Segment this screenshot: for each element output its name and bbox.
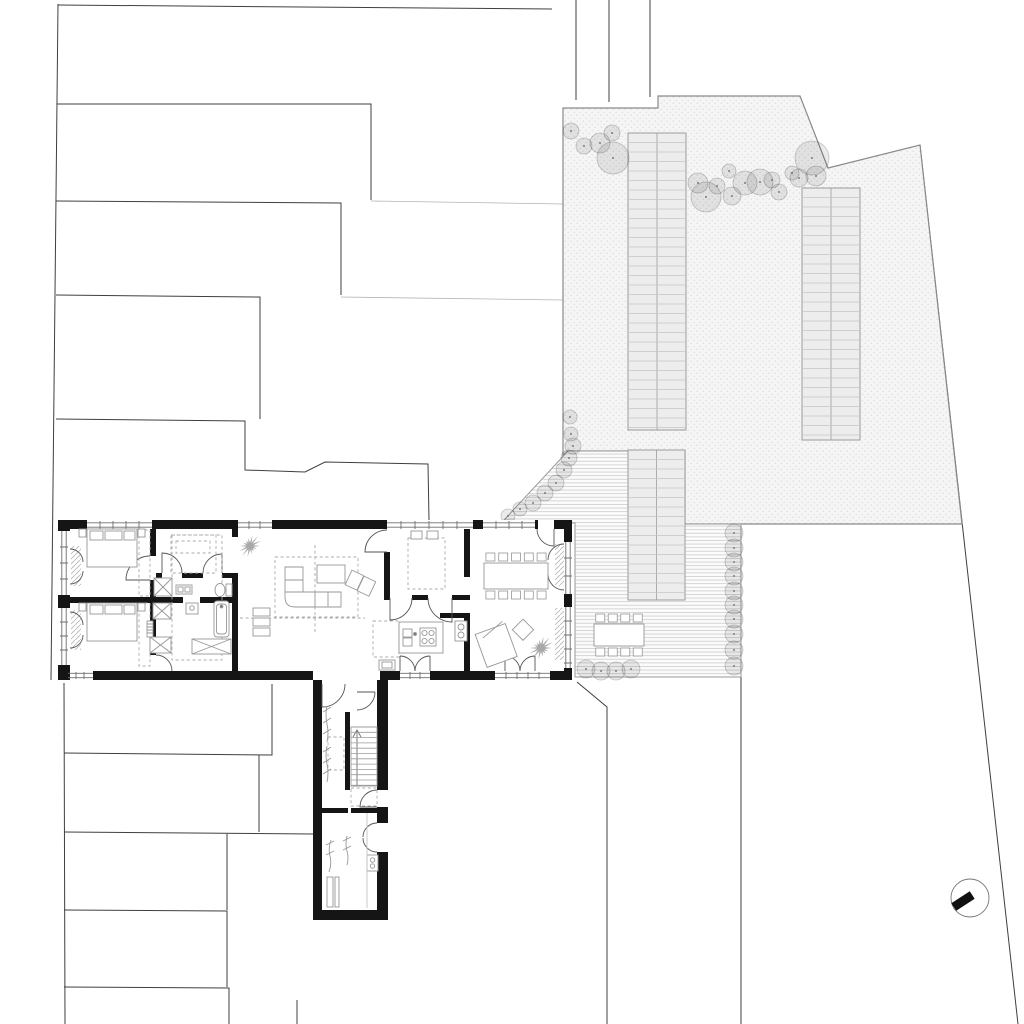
- basin-unit: [186, 603, 198, 614]
- coffee-table: [317, 565, 345, 583]
- chair: [512, 553, 521, 561]
- nightstand: [79, 529, 86, 537]
- nightstand: [79, 603, 86, 611]
- base-cabinet-inner: [382, 662, 392, 668]
- chair: [608, 648, 617, 656]
- tree-trunk-dot: [744, 182, 746, 184]
- chair: [499, 553, 508, 561]
- tree-trunk-dot: [733, 604, 735, 606]
- tree-trunk-dot: [583, 145, 585, 147]
- tree-trunk-dot: [572, 445, 574, 447]
- planting-bed: [802, 188, 860, 440]
- nightstand: [138, 603, 145, 611]
- tree-trunk-dot: [599, 142, 601, 144]
- tree-trunk-dot: [585, 668, 587, 670]
- tree-trunk-dot: [568, 457, 570, 459]
- pillow: [124, 605, 135, 614]
- pillow: [90, 531, 103, 540]
- north-arrow: [951, 879, 989, 917]
- tree-trunk-dot: [716, 185, 718, 187]
- cooktop: [420, 628, 436, 646]
- tree-trunk-dot: [733, 665, 735, 667]
- shelf-unit: [253, 628, 270, 636]
- tree-trunk-dot: [731, 195, 733, 197]
- tree-trunk-dot: [570, 130, 572, 132]
- tree-trunk-dot: [733, 532, 735, 534]
- bathtub-inner: [217, 604, 227, 634]
- tree-trunk-dot: [733, 547, 735, 549]
- parcel-line: [64, 683, 65, 1024]
- chair: [537, 591, 546, 599]
- tree-trunk-dot: [615, 670, 617, 672]
- parcel-line: [64, 832, 313, 834]
- site-plan-canvas: [0, 0, 1024, 1024]
- tree-trunk-dot: [555, 482, 557, 484]
- parcel-line: [56, 295, 260, 419]
- basin: [185, 587, 190, 592]
- parcel-line-faint: [371, 201, 563, 204]
- chair: [608, 614, 617, 622]
- curtain-hatch: [555, 608, 564, 660]
- tree-trunk-dot: [733, 590, 735, 592]
- chair: [537, 553, 546, 561]
- radiator: [147, 621, 153, 637]
- chair: [486, 553, 495, 561]
- tree-trunk-dot: [815, 175, 817, 177]
- chair: [633, 614, 642, 622]
- basin: [178, 587, 183, 592]
- chair: [499, 591, 508, 599]
- tree-trunk-dot: [778, 191, 780, 193]
- parcel-line: [51, 4, 58, 680]
- tree-trunk-dot: [507, 515, 509, 517]
- sink: [403, 629, 412, 637]
- sink: [403, 638, 412, 646]
- chair: [621, 648, 630, 656]
- pillow: [90, 605, 103, 614]
- chair: [512, 591, 521, 599]
- pillow: [124, 531, 135, 540]
- chair: [596, 614, 605, 622]
- toilet-bowl: [215, 584, 225, 597]
- tree-trunk-dot: [569, 416, 571, 418]
- chair: [486, 591, 495, 599]
- floor-plan-drawing: [0, 0, 1024, 1024]
- parcel-line: [64, 987, 229, 1024]
- tree-trunk-dot: [612, 157, 614, 159]
- tree-trunk-dot: [798, 177, 800, 179]
- tree-trunk-dot: [733, 618, 735, 620]
- tree-trunk-dot: [733, 633, 735, 635]
- chair: [596, 648, 605, 656]
- tree-trunk-dot: [600, 670, 602, 672]
- tree-trunk-dot: [733, 561, 735, 563]
- desk-chair: [427, 531, 438, 539]
- parcel-line: [64, 910, 227, 987]
- parcel-line: [64, 684, 272, 755]
- tree-trunk-dot: [570, 433, 572, 435]
- nightstand: [138, 529, 145, 537]
- tree-trunk-dot: [532, 502, 534, 504]
- parcel-line: [58, 5, 552, 9]
- curtain-hatch: [555, 544, 564, 586]
- tree-trunk-dot: [705, 196, 707, 198]
- dining-table: [484, 553, 548, 599]
- tree-trunk-dot: [544, 492, 546, 494]
- chair: [524, 591, 533, 599]
- wing-shelf: [327, 877, 333, 907]
- parcel-line-faint: [341, 297, 563, 300]
- shelf-unit: [253, 608, 270, 616]
- tap: [414, 633, 417, 636]
- planting-bed: [628, 133, 686, 430]
- tree-trunk-dot: [759, 181, 761, 183]
- planting-bed: [628, 450, 685, 600]
- bathtub-tap: [220, 605, 223, 608]
- desk-chair: [411, 531, 422, 539]
- parcel-line: [56, 419, 429, 520]
- parcel-line: [57, 104, 371, 200]
- tree-trunk-dot: [733, 649, 735, 651]
- parcel-line: [56, 201, 341, 295]
- chair: [524, 553, 533, 561]
- tree-trunk-dot: [733, 575, 735, 577]
- wing-shelf: [335, 877, 339, 907]
- pillow: [105, 605, 122, 614]
- chair: [633, 648, 642, 656]
- tree-trunk-dot: [771, 179, 773, 181]
- toilet-tank: [226, 584, 232, 596]
- tree-trunk-dot: [630, 668, 632, 670]
- tree-trunk-dot: [811, 157, 813, 159]
- tree-trunk-dot: [611, 132, 613, 134]
- tree-trunk-dot: [728, 170, 730, 172]
- chair: [621, 614, 630, 622]
- pillow: [105, 531, 122, 540]
- parcel-line: [577, 682, 607, 1024]
- shelf-unit: [253, 618, 270, 626]
- tree-trunk-dot: [563, 469, 565, 471]
- tree-trunk-dot: [519, 508, 521, 510]
